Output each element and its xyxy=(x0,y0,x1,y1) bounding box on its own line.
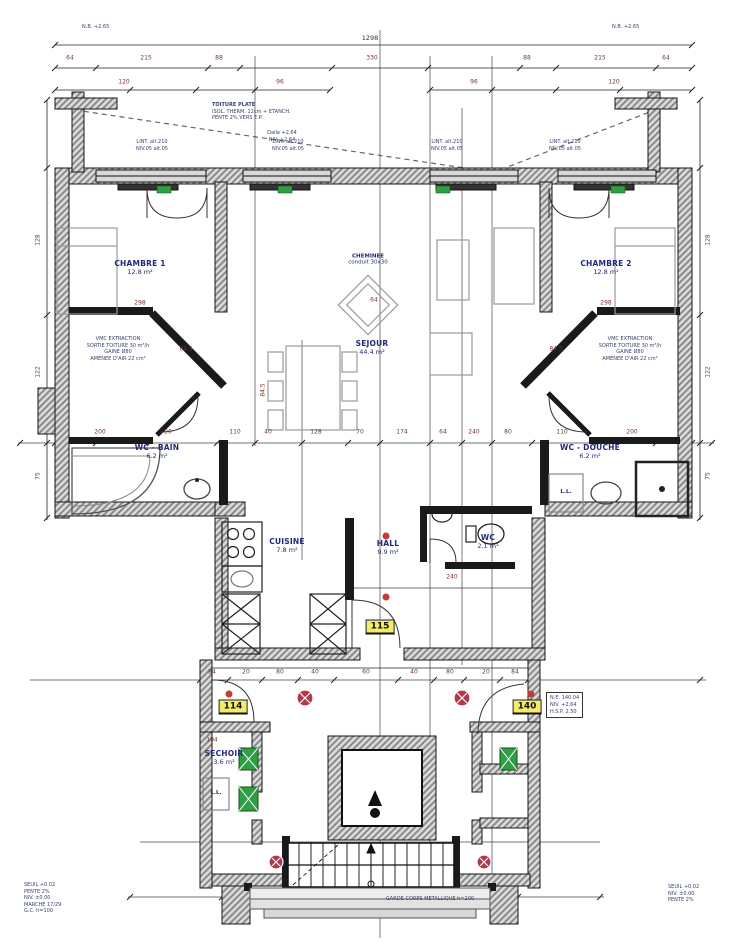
note-line: G.C. h=100 xyxy=(24,908,61,915)
dimension-overall: 1298 xyxy=(362,34,379,42)
room-area: 6.2 m² xyxy=(560,453,620,460)
slab-note-line: NIV. +2.64 xyxy=(267,137,297,144)
dimension-label: 215 xyxy=(594,55,605,62)
room-area: 12.8 m² xyxy=(580,269,631,276)
dimension-label: 215 xyxy=(140,55,151,62)
room-area: 9.9 m² xyxy=(377,549,399,556)
room-area: 6.2 m² xyxy=(135,453,180,460)
level-box: N.E. 140.04 NIV. +2.64 H.S.P. 2.50 xyxy=(546,692,583,718)
vmc-line: AMENEE D'AIR 22 cm² xyxy=(87,356,150,363)
entrance-note-left: SEUIL +0.02 PENTE 2% NIV. ±0.00 MARCHE 1… xyxy=(24,882,61,915)
room-label-wc: WC 2.1 m² xyxy=(477,534,498,550)
roof-slope-dashed-lines xyxy=(75,106,665,170)
vmc-line: VMC EXTRACTION xyxy=(87,336,150,343)
stairs xyxy=(288,843,454,887)
dimension-label: 110 xyxy=(229,429,240,436)
lintel-line: NIV.05 alt.05 xyxy=(549,146,581,153)
room-label-hall: HALL 9.9 m² xyxy=(377,540,399,556)
lintel-label: LINT. alt.210 NIV.05 alt.05 xyxy=(136,139,168,152)
dimension-label: 64 xyxy=(66,55,74,62)
room-label-wc-douche: WC - DOUCHE 6.2 m² xyxy=(560,444,620,460)
lintel-label: LINT. alt.210 NIV.05 alt.05 xyxy=(549,139,581,152)
roof-note-line: PENTE 2% VERS E.P. xyxy=(212,115,291,122)
slab-note-line: Dalle +2.64 xyxy=(267,130,297,137)
dimension-label: 240 xyxy=(468,429,479,436)
room-area: 3.6 m² xyxy=(205,759,244,766)
door-tag-115: 115 xyxy=(366,620,395,635)
room-area: 7.8 m² xyxy=(269,547,304,554)
dimension-label: 80 xyxy=(276,669,284,676)
dimension-label: 64 xyxy=(370,297,378,304)
room-label-cuisine: CUISINE 7.8 m² xyxy=(269,538,304,554)
lintel-label: LINT. alt.210 NIV.05 alt.05 xyxy=(431,139,463,152)
dimension-label: 96 xyxy=(276,79,284,86)
roof-note: TOITURE PLATE ISOL. THERM. 12cm + ETANCH… xyxy=(212,102,291,122)
dimension-label: 128 xyxy=(35,234,42,245)
floor-plan: CHAMBRE 1 12.8 m² CHAMBRE 2 12.8 m² SEJO… xyxy=(0,0,732,952)
dimension-label: 298 xyxy=(134,300,145,307)
dimension-label: 128 xyxy=(705,234,712,245)
lintel-line: LINT. alt.210 xyxy=(431,139,463,146)
level-box-line: N.E. 140.04 xyxy=(550,695,579,702)
dimension-label: 84 xyxy=(208,669,216,676)
dimension-label: 110 xyxy=(556,429,567,436)
dimension-label: 84 xyxy=(511,669,519,676)
lintel-line: NIV.05 alt.05 xyxy=(431,146,463,153)
dimension-label: 40 xyxy=(311,669,319,676)
dimension-label: 80 xyxy=(504,429,512,436)
entrance-note-right: SEUIL +0.02 NIV. ±0.00 PENTE 2% xyxy=(668,884,699,904)
room-area: 44.4 m² xyxy=(356,349,389,356)
dimension-label: 120 xyxy=(118,79,129,86)
level-box-line: H.S.P. 2.50 xyxy=(550,709,579,716)
elevator xyxy=(328,736,436,840)
dimension-label: 80 xyxy=(446,669,454,676)
dimension-label: 200 xyxy=(94,429,105,436)
dimension-label: 60 xyxy=(362,669,370,676)
dimension-label: 75 xyxy=(35,472,42,480)
diagonal-walls xyxy=(152,313,595,435)
chimney-note: CHEMINEE conduit 30x30 xyxy=(348,254,388,267)
entrance-steps xyxy=(250,888,490,918)
dimension-label: 122 xyxy=(35,366,42,377)
dimension-label: 64 xyxy=(662,55,670,62)
dimension-label: 174 xyxy=(396,429,407,436)
note-line: PENTE 2% xyxy=(668,897,699,904)
dimension-label: 64 xyxy=(439,429,447,436)
dimension-label: 70 xyxy=(356,429,364,436)
room-label-chambre1: CHAMBRE 1 12.8 m² xyxy=(114,260,165,276)
room-area: 12.8 m² xyxy=(114,269,165,276)
room-label-sechoir: SECHOIR 3.6 m² xyxy=(205,750,244,766)
room-label-sejour: SEJOUR 44.4 m² xyxy=(356,340,389,356)
lintel-line: LINT. alt.210 xyxy=(136,139,168,146)
dimension-label: 88 xyxy=(215,55,223,62)
dimension-label: 120 xyxy=(608,79,619,86)
door-tag-114: 114 xyxy=(219,700,248,715)
chimney-note-line: conduit 30x30 xyxy=(348,260,388,266)
room-area: 2.1 m² xyxy=(477,543,498,550)
dimension-label: 240 xyxy=(446,574,457,581)
floor-plan-drawing xyxy=(0,0,732,952)
dimension-label: 84.5 xyxy=(549,346,562,353)
dimension-label: 96 xyxy=(470,79,478,86)
vmc-line: AMENEE D'AIR 22 cm² xyxy=(599,356,662,363)
vmc-note-left: VMC EXTRACTION SORTIE TOITURE 30 m³/h GA… xyxy=(87,336,150,362)
dimension-label: 330 xyxy=(366,55,377,62)
level-note-right: N.B. +2.65 xyxy=(612,24,639,31)
dimension-label: 88 xyxy=(523,55,531,62)
door-tag-140: 140 xyxy=(513,700,542,715)
dimension-label: 75 xyxy=(705,472,712,480)
guardrail-note: GARDE-CORPS METALLIQUE h=100 xyxy=(386,896,474,903)
washing-machine-label: L.L. xyxy=(560,489,571,495)
level-note-left: N.B. +2.65 xyxy=(82,24,109,31)
dimension-label: 20 xyxy=(242,669,250,676)
dimension-label: 40 xyxy=(410,669,418,676)
dimension-label: 20 xyxy=(482,669,490,676)
room-label-wc-bain: WC - BAIN 6.2 m² xyxy=(135,444,180,460)
dimension-label: 298 xyxy=(600,300,611,307)
lintel-line: NIV.05 alt.05 xyxy=(272,146,304,153)
dimension-label: 200 xyxy=(626,429,637,436)
room-label-chambre2: CHAMBRE 2 12.8 m² xyxy=(580,260,631,276)
vmc-line: VMC EXTRACTION xyxy=(599,336,662,343)
washing-machine-label: L.L. xyxy=(210,790,221,796)
lintel-line: LINT. alt.210 xyxy=(549,139,581,146)
dimension-label: 104 xyxy=(206,737,217,744)
note-line: SEUIL +0.02 xyxy=(668,884,699,891)
dimension-label: 40 xyxy=(264,429,272,436)
lintel-line: NIV.05 alt.05 xyxy=(136,146,168,153)
dimension-label: 122 xyxy=(705,366,712,377)
dimension-label: 84.5 xyxy=(260,383,267,396)
dimension-label: 90 xyxy=(164,429,172,436)
slab-note: Dalle +2.64 NIV. +2.64 xyxy=(267,130,297,143)
level-box-line: NIV. +2.64 xyxy=(550,702,579,709)
vmc-note-right: VMC EXTRACTION SORTIE TOITURE 30 m³/h GA… xyxy=(599,336,662,362)
dimension-label: 84.5 xyxy=(179,346,192,353)
dimension-label: 128 xyxy=(310,429,321,436)
